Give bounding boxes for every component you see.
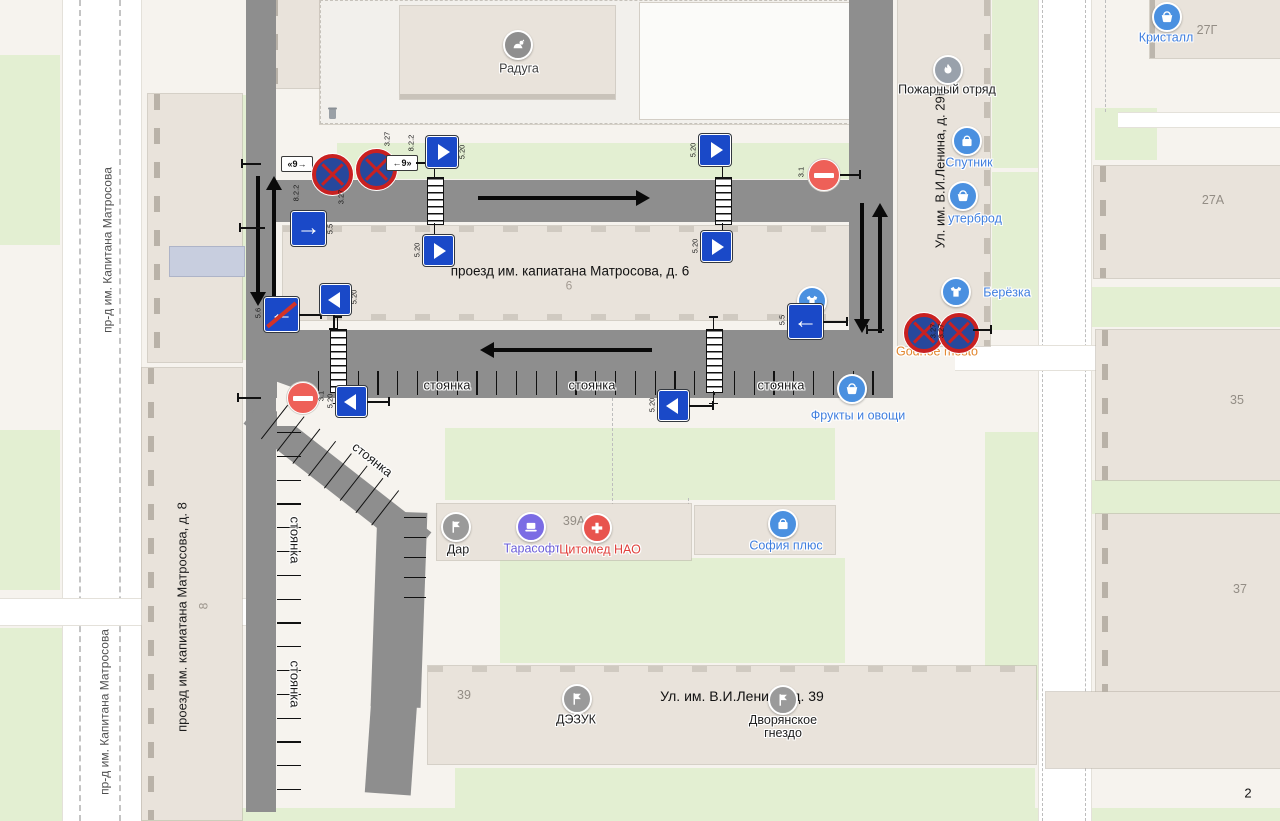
- sign-3-1-top-code: 3.1: [797, 167, 806, 177]
- parking-label-3: стоянка: [758, 379, 805, 394]
- speed-hump-4: [706, 329, 723, 393]
- parking-tick: [536, 371, 537, 395]
- building-number-39: 39: [457, 688, 471, 702]
- parking-tick: [417, 371, 418, 395]
- sign-plate-8-2-2-a: «9→: [281, 156, 313, 172]
- building-number-27g: 27Г: [1197, 23, 1218, 37]
- sign-plate-8-2-2-b: ←9»: [386, 155, 418, 171]
- pet-icon: [510, 37, 526, 53]
- parking-tick: [355, 478, 383, 513]
- speed-hump-3: [330, 329, 347, 393]
- speed-hump-4-cap: [709, 403, 718, 405]
- parking-tick: [324, 453, 352, 488]
- sign-5-6-end-one-way: [264, 297, 299, 332]
- map-canvas: пр-д им. Капитана Матросовапр-д им. Капи…: [0, 0, 1280, 821]
- arrow-head: [480, 342, 494, 358]
- arrow-head: [872, 203, 888, 217]
- basket-icon: [955, 188, 971, 204]
- building-number-35: 35: [1230, 393, 1244, 407]
- poi-dezuk-label[interactable]: ДЭЗУК: [556, 713, 596, 726]
- poi-pozharny-otryad-label[interactable]: Пожарный отряд: [898, 83, 996, 96]
- parking-tick: [308, 441, 336, 476]
- parking-tick: [404, 597, 426, 598]
- poi-citomed-nao-label[interactable]: Цитомед НАО: [559, 543, 641, 556]
- cross-icon: [589, 520, 605, 536]
- parking-tick: [277, 741, 301, 742]
- sign-5-20-mid-2: [701, 231, 732, 262]
- parking-label-5: стоянка: [287, 661, 302, 708]
- poi-sputnik-label[interactable]: Спутник: [945, 156, 992, 169]
- flag-icon: [569, 691, 585, 707]
- parking-tick: [277, 503, 301, 504]
- poi-dar-label[interactable]: Дар: [447, 543, 469, 556]
- parking-tick: [277, 718, 301, 719]
- arrow-shaft: [478, 196, 637, 200]
- parking-tick: [404, 517, 426, 518]
- sign-3-27-a-code: 3.27: [337, 190, 346, 205]
- parking-tick: [516, 371, 517, 395]
- sign-5-20-mid-3-code: 5.20: [350, 290, 359, 305]
- parking-tick: [261, 404, 289, 439]
- trash-bin-icon: [326, 105, 339, 120]
- arrow-shaft: [860, 203, 864, 320]
- parking-tick: [371, 490, 399, 525]
- parking-tick: [404, 537, 426, 538]
- sign-5-20-mid-2-code: 5.20: [691, 239, 700, 254]
- sign-5-6-end-one-way-pole: [299, 314, 321, 316]
- building-number-8: 8: [197, 603, 210, 610]
- parking-label-4: стоянка: [287, 517, 302, 564]
- poi-frukty-ovoshchi[interactable]: [837, 374, 867, 404]
- sign-5-5-right-arrow: [291, 211, 326, 246]
- sign-3-27-b-code: 3.27: [383, 132, 392, 147]
- poi-tarasoft[interactable]: [516, 512, 546, 542]
- speed-hump-2: [715, 177, 732, 225]
- overlay-layer: пр-д им. Капитана Матросовапр-д им. Капи…: [0, 0, 1280, 821]
- poi-berezka[interactable]: [941, 277, 971, 307]
- poi-raduga[interactable]: [503, 30, 533, 60]
- sign-plate-8-2-2-a-pole-cap: [241, 159, 243, 168]
- sign-5-20-bot-2-pole: [689, 405, 713, 407]
- parking-tick: [277, 575, 301, 576]
- parking-tick: [277, 765, 301, 766]
- poi-pozharny-otryad[interactable]: [933, 55, 963, 85]
- sign-plate-8-2-2-b-code: 8.2.2: [407, 135, 416, 152]
- parking-tick: [872, 371, 873, 395]
- flag-icon: [448, 519, 464, 535]
- speed-hump-1: [427, 177, 444, 225]
- parking-tick: [734, 371, 735, 395]
- parking-tick: [277, 480, 301, 481]
- sign-5-20-bot-1-pole: [367, 401, 389, 403]
- arrow-head: [636, 190, 650, 206]
- parking-tick: [476, 371, 477, 395]
- street-label-matrosova-bottom: пр-д им. Капитана Матросова: [98, 629, 111, 795]
- street-label-lenina-39: Ул. им. В.И.Ленина, д. 39: [660, 689, 824, 705]
- parking-tick: [340, 466, 368, 501]
- sign-3-1-top-pole-cap: [859, 170, 861, 179]
- sign-3-27-d-pole-cap: [990, 325, 992, 334]
- flag-icon: [775, 692, 791, 708]
- building-number-27a: 27А: [1202, 193, 1224, 207]
- poi-dezuk[interactable]: [562, 684, 592, 714]
- tshirt-icon: [948, 284, 964, 300]
- building-number-37: 37: [1233, 582, 1247, 596]
- laptop-icon: [523, 519, 539, 535]
- arrow-shaft: [272, 189, 276, 306]
- flame-icon: [940, 62, 956, 78]
- sign-5-20-bot-2: [658, 390, 689, 421]
- sign-5-20-top-1: [426, 136, 458, 168]
- sign-3-27-d-code: 3.27: [937, 324, 946, 339]
- poi-kristall[interactable]: [1152, 2, 1182, 32]
- sign-5-5-right-arrow-pole-cap: [239, 223, 241, 232]
- sign-5-5-left-arrow-pole: [823, 321, 847, 323]
- sign-5-20-top-1-code: 5.20: [458, 145, 467, 160]
- flow-arrow-left-road-north: [266, 176, 282, 306]
- parking-tick: [556, 371, 557, 395]
- flow-arrow-right-road-south: [854, 203, 870, 333]
- sign-5-20-bot-1-code: 5.20: [326, 394, 335, 409]
- basket-icon: [1159, 9, 1175, 25]
- sign-5-5-left-arrow-pole-cap: [846, 317, 848, 326]
- parking-tick: [813, 371, 814, 395]
- sign-5-20-top-2-code: 5.20: [689, 143, 698, 158]
- sign-3-1-top-pole: [840, 174, 860, 176]
- poi-dvoryanskoe-gnezdo-label[interactable]: Дворянское гнездо: [739, 714, 827, 740]
- arrow-shaft: [256, 176, 260, 293]
- sign-5-20-mid-3: [320, 284, 351, 315]
- poi-buterbrod[interactable]: [948, 181, 978, 211]
- parking-tick: [277, 646, 301, 647]
- poi-sputnik[interactable]: [952, 126, 982, 156]
- parking-tick: [496, 371, 497, 395]
- sign-5-5-right-arrow-pole: [239, 227, 265, 229]
- speed-hump-4-cap: [709, 316, 718, 318]
- sign-3-1-bottom: [287, 382, 319, 414]
- poi-frukty-ovoshchi-label[interactable]: Фрукты и овощи: [811, 409, 905, 422]
- parking-tick: [277, 599, 301, 600]
- parking-tick: [377, 371, 378, 395]
- poi-dar[interactable]: [441, 512, 471, 542]
- basket-icon: [844, 381, 860, 397]
- poi-sofia-plus-label[interactable]: София плюс: [749, 539, 822, 552]
- bag-icon: [775, 516, 791, 532]
- sign-5-20-mid-1-code: 5.20: [413, 243, 422, 258]
- sign-5-5-left-arrow-code: 5.5: [778, 315, 787, 325]
- parking-tick: [833, 371, 834, 395]
- parking-tick: [397, 371, 398, 395]
- arrow-head: [266, 176, 282, 190]
- poi-citomed-nao[interactable]: [582, 513, 612, 543]
- parking-label-6: стоянка: [349, 440, 395, 480]
- poi-dvoryanskoe-gnezdo[interactable]: [768, 685, 798, 715]
- sign-3-27-c-pole: [866, 329, 884, 331]
- street-label-matrosova-8: проезд им. капиатана Матросова, д. 8: [176, 502, 191, 732]
- building-number-6: 6: [566, 279, 573, 292]
- sign-3-27-c-pole-cap: [866, 325, 868, 334]
- sign-3-1-bottom-pole: [237, 397, 261, 399]
- sign-5-20-bot-2-code: 5.20: [648, 398, 657, 413]
- sign-3-1-bottom-code: 3.1: [317, 391, 326, 401]
- flow-arrow-right-road-north: [872, 203, 888, 333]
- parking-label-1: стоянка: [424, 379, 471, 394]
- page-number: 2: [1244, 787, 1251, 802]
- flow-arrow-bottom-road-west: [480, 342, 652, 358]
- parking-tick: [277, 416, 305, 451]
- parking-label-2: стоянка: [569, 379, 616, 394]
- parking-tick: [694, 371, 695, 395]
- sign-3-27-d-pole: [973, 329, 991, 331]
- parking-tick: [404, 577, 426, 578]
- poi-berezka-label[interactable]: Берёзка: [983, 286, 1031, 299]
- sign-5-20-mid-3-pole-cap: [329, 328, 338, 330]
- poi-tarasoft-label[interactable]: Тарасофт: [503, 542, 560, 555]
- flow-arrow-top-road-east: [478, 190, 650, 206]
- parking-tick: [754, 371, 755, 395]
- sign-plate-8-2-2-a-code: 8.2.2: [292, 185, 301, 202]
- parking-tick: [277, 789, 301, 790]
- bag-icon: [959, 133, 975, 149]
- poi-raduga-label[interactable]: Радуга: [499, 62, 539, 75]
- parking-tick: [404, 557, 426, 558]
- poi-kristall-label[interactable]: Кристалл: [1139, 31, 1194, 44]
- sign-5-20-bot-2-pole-cap: [712, 401, 714, 410]
- sign-5-6-end-one-way-code: 5.6: [254, 308, 263, 318]
- sign-3-1-bottom-pole-cap: [237, 393, 239, 402]
- arrow-head: [854, 319, 870, 333]
- street-label-matrosova-top: пр-д им. Капитана Матросова: [101, 167, 114, 333]
- parking-tick: [277, 622, 301, 623]
- speed-hump-4-stub: [713, 316, 715, 329]
- arrow-shaft: [493, 348, 652, 352]
- sign-5-5-left-arrow: [788, 304, 823, 339]
- sign-5-20-mid-1: [423, 235, 454, 266]
- parking-tick: [655, 371, 656, 395]
- sign-5-20-bot-1: [336, 386, 367, 417]
- sign-plate-8-2-2-a-pole: [241, 163, 261, 165]
- poi-sofia-plus[interactable]: [768, 509, 798, 539]
- parking-tick: [292, 429, 320, 464]
- sign-3-27-a: [312, 154, 353, 195]
- sign-5-20-top-2: [699, 134, 731, 166]
- flow-arrow-left-road-south: [250, 176, 266, 306]
- sign-5-20-mid-3-pole: [333, 315, 335, 329]
- arrow-shaft: [878, 216, 882, 333]
- sign-5-20-bot-1-pole-cap: [388, 397, 390, 406]
- parking-tick: [635, 371, 636, 395]
- sign-3-1-top: [808, 159, 840, 191]
- poi-buterbrod-label[interactable]: утерброд: [948, 212, 1002, 225]
- sign-5-5-right-arrow-code: 5.5: [326, 224, 335, 234]
- building-label-matrosova-6: проезд им. капиатана Матросова, д. 6: [451, 263, 690, 278]
